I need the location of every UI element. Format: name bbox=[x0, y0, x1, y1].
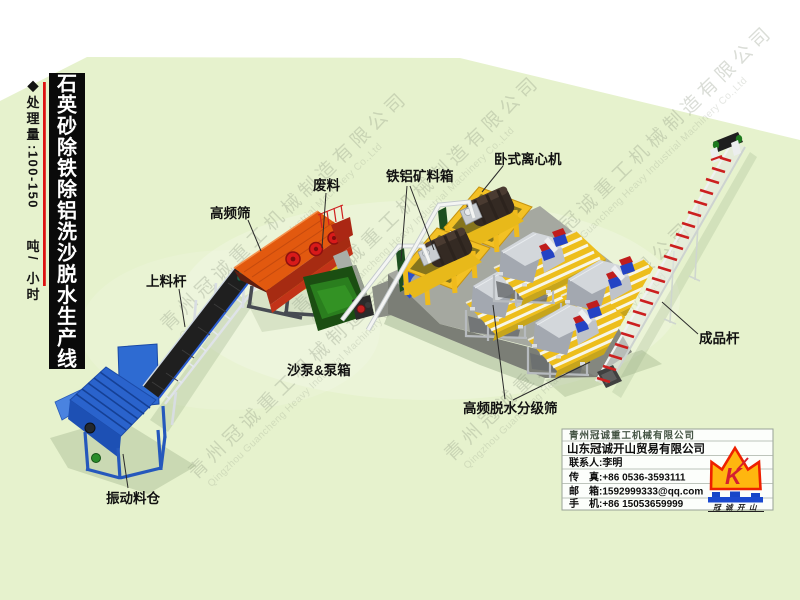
svg-text:砂: 砂 bbox=[57, 115, 77, 138]
svg-text:小: 小 bbox=[26, 271, 39, 286]
svg-text:洗: 洗 bbox=[57, 221, 77, 244]
svg-text:传 真:+86 0536-3593111: 传 真:+86 0536-3593111 bbox=[568, 471, 686, 484]
svg-text:石: 石 bbox=[56, 74, 77, 96]
svg-text:沙: 沙 bbox=[57, 242, 77, 265]
svg-text::100-150: :100-150 bbox=[26, 145, 41, 209]
svg-text:铁铝矿料箱: 铁铝矿料箱 bbox=[386, 168, 454, 184]
svg-text:时: 时 bbox=[26, 287, 39, 302]
svg-text:沙泵&泵箱: 沙泵&泵箱 bbox=[287, 362, 351, 378]
svg-text:脱: 脱 bbox=[57, 262, 77, 286]
svg-text:理: 理 bbox=[26, 111, 39, 126]
svg-text:水: 水 bbox=[57, 284, 78, 307]
svg-text:产: 产 bbox=[57, 325, 77, 349]
svg-text:上料杆: 上料杆 bbox=[146, 273, 187, 289]
svg-text:吨: 吨 bbox=[26, 239, 39, 254]
svg-text:生: 生 bbox=[57, 305, 77, 328]
svg-text:除: 除 bbox=[57, 135, 78, 159]
svg-text:高频脱水分级筛: 高频脱水分级筛 bbox=[463, 400, 558, 416]
svg-text:振动料仓: 振动料仓 bbox=[106, 490, 160, 506]
svg-text:冠诚开山: 冠诚开山 bbox=[712, 503, 761, 512]
svg-text:废料: 废料 bbox=[313, 177, 340, 193]
svg-text:铁: 铁 bbox=[57, 156, 77, 180]
svg-text:/: / bbox=[26, 256, 41, 260]
svg-text:联系人:李明: 联系人:李明 bbox=[569, 456, 622, 469]
svg-text:成品杆: 成品杆 bbox=[699, 330, 740, 346]
svg-text:量: 量 bbox=[26, 127, 39, 142]
svg-text:◆: ◆ bbox=[27, 77, 40, 93]
svg-text:山东冠诚开山贸易有限公司: 山东冠诚开山贸易有限公司 bbox=[567, 442, 705, 456]
svg-text:英: 英 bbox=[57, 93, 78, 117]
svg-text:处: 处 bbox=[25, 95, 40, 110]
svg-text:线: 线 bbox=[57, 346, 77, 370]
svg-text:高频筛: 高频筛 bbox=[210, 205, 251, 221]
svg-text:手 机:+86 15053659999: 手 机:+86 15053659999 bbox=[569, 497, 684, 510]
svg-text:卧式离心机: 卧式离心机 bbox=[494, 151, 562, 167]
svg-text:青州冠诚重工机械有限公司: 青州冠诚重工机械有限公司 bbox=[569, 430, 695, 442]
svg-text:邮 箱:1592999333@qq.com: 邮 箱:1592999333@qq.com bbox=[569, 485, 703, 498]
svg-text:铝: 铝 bbox=[57, 198, 77, 222]
svg-text:除: 除 bbox=[57, 177, 78, 201]
